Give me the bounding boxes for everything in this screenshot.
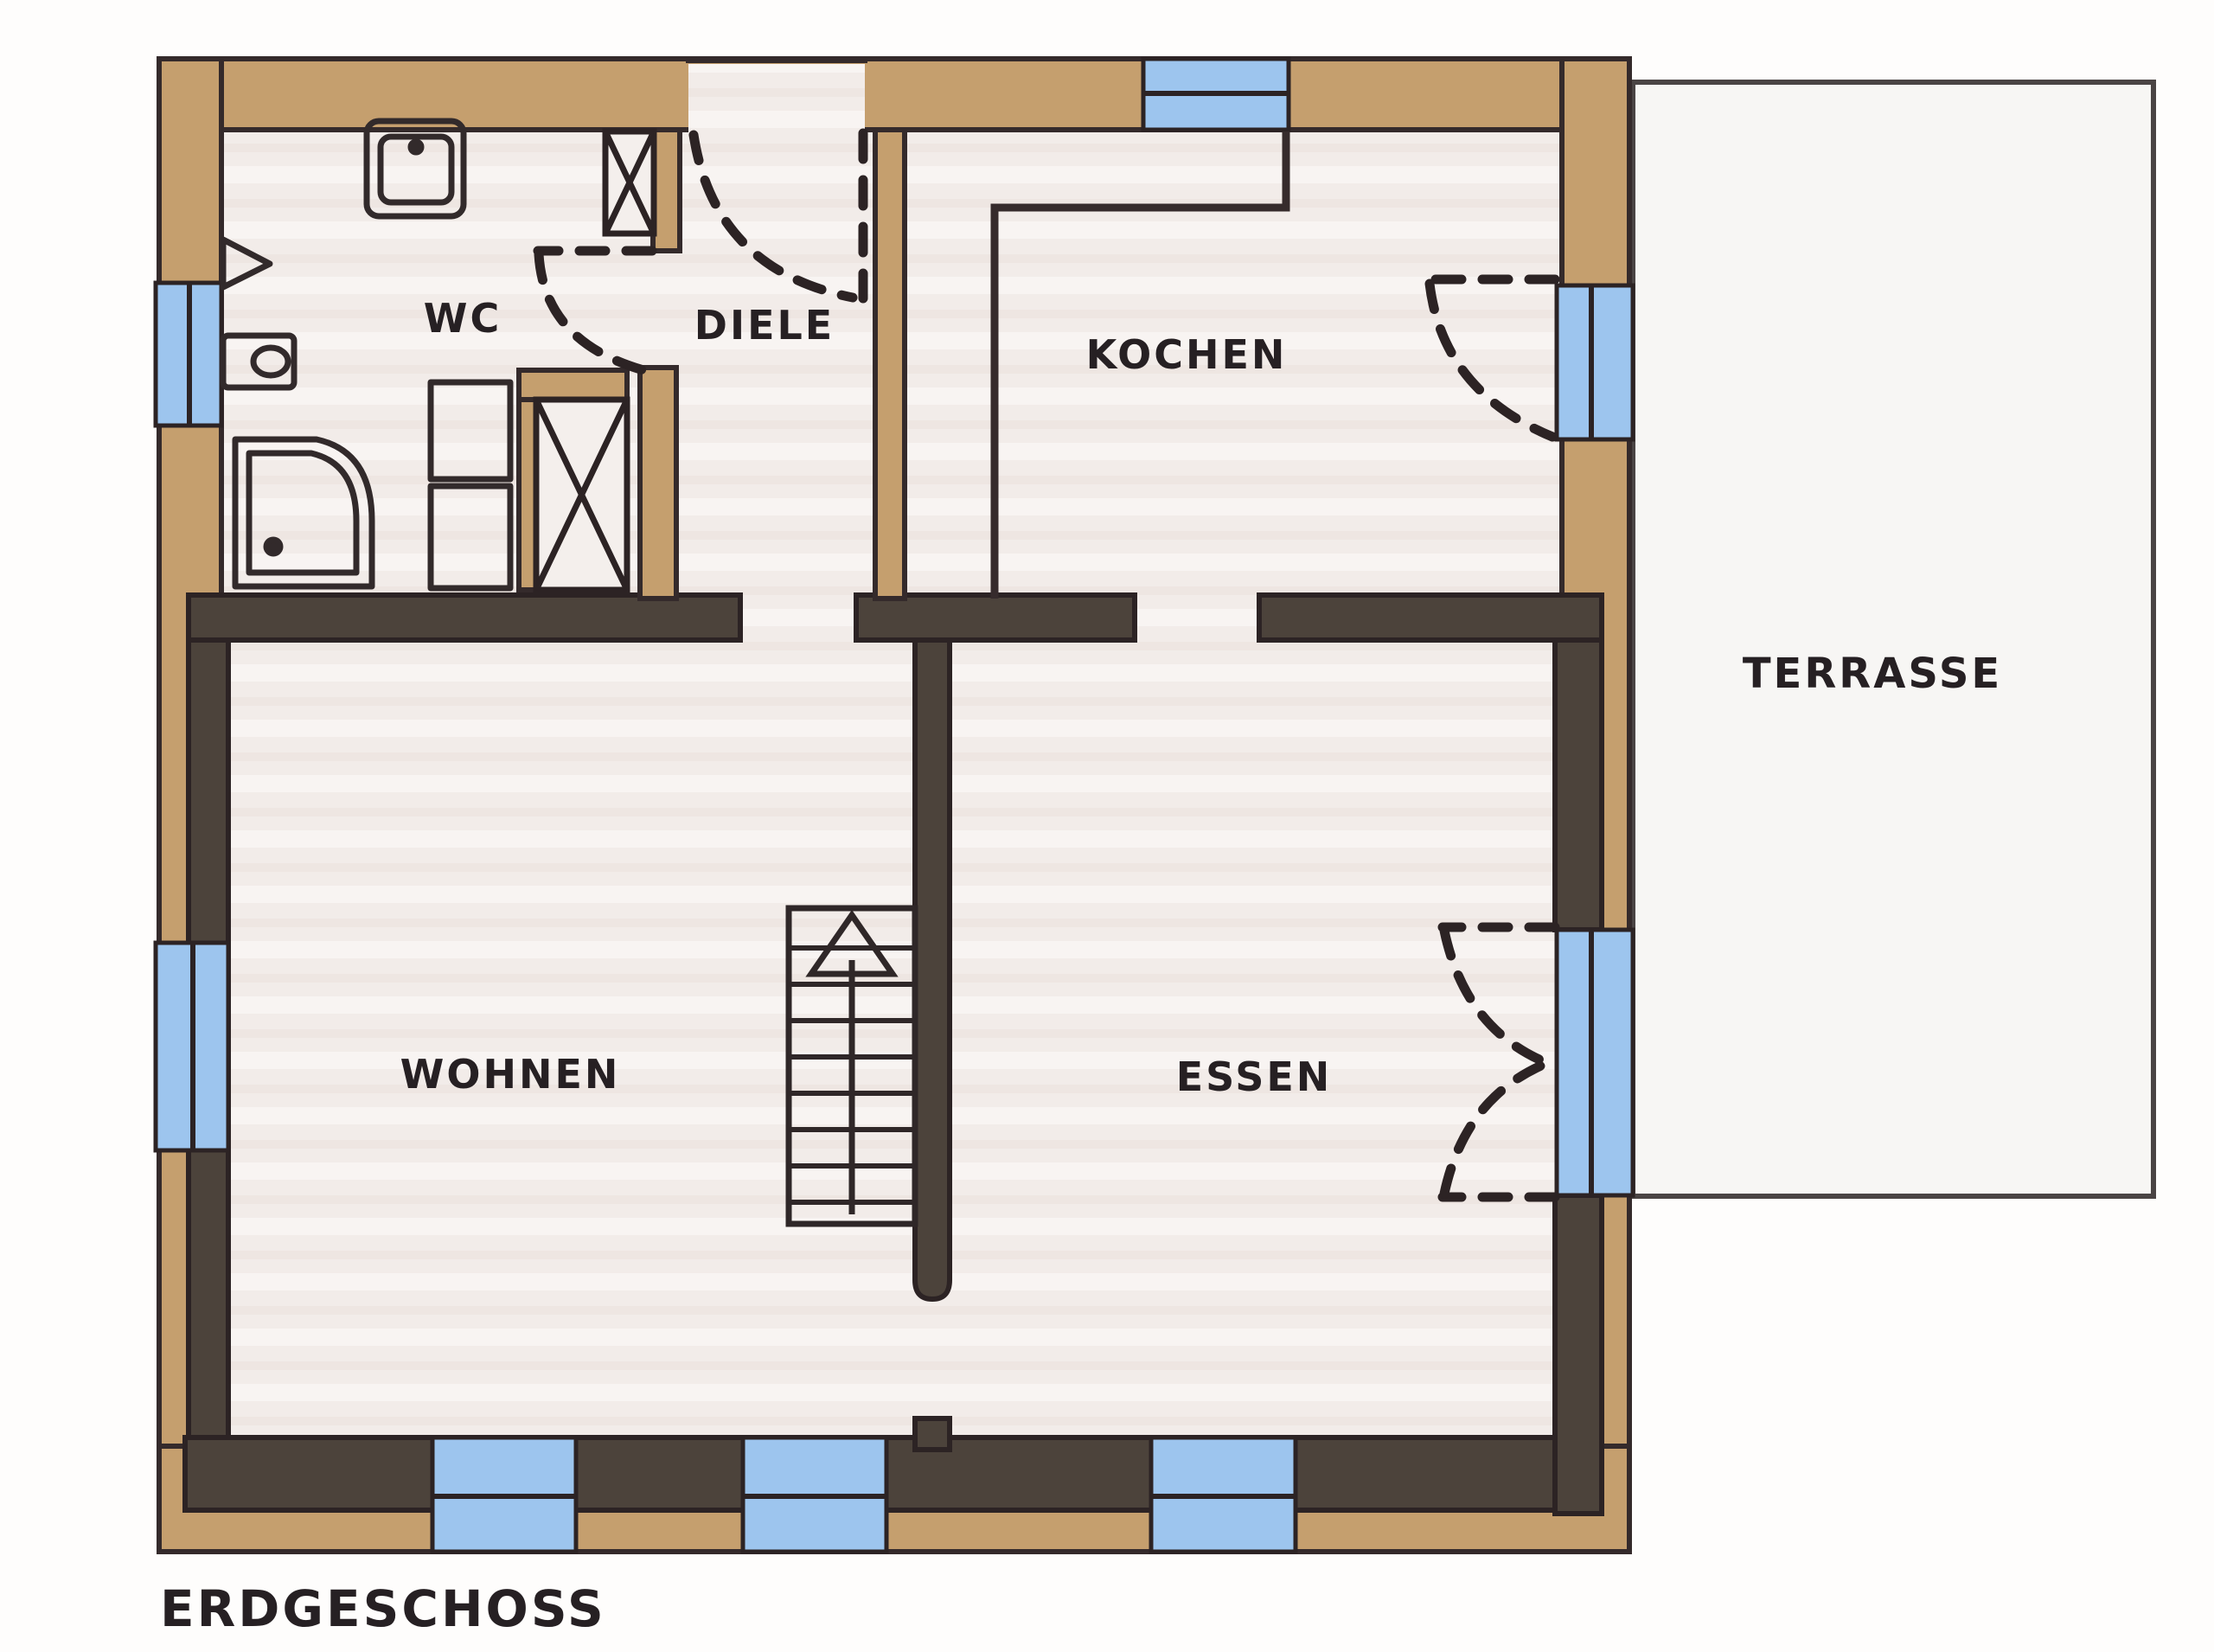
terrace [1633, 82, 2153, 1196]
partition-diele-kochen [875, 130, 905, 599]
partition-wc-diele-top [653, 130, 680, 251]
wall-right-band-upper [1555, 595, 1602, 930]
label-essen: ESSEN [1176, 1053, 1333, 1100]
shaft-wrap-top [519, 370, 627, 400]
terrace-door-essen [1557, 930, 1633, 1195]
label-kochen: KOCHEN [1086, 331, 1288, 378]
entrance-opening [688, 64, 865, 133]
interior-wall-stub-bottom [915, 1418, 950, 1450]
interior-wall-diele-essen [856, 595, 1135, 640]
wall-right-band-lower [1555, 1195, 1602, 1514]
shaft-x-icon [536, 400, 627, 590]
floor-plan: WC DIELE KOCHEN WOHNEN ESSEN TERRASSE ER… [0, 0, 2214, 1652]
terrace-door-kochen [1557, 285, 1633, 439]
wall-bottom-inner-band [185, 1437, 1600, 1510]
terrace-area [1633, 82, 2153, 1196]
label-wohnen: WOHNEN [400, 1051, 621, 1098]
interior-wall-kochen-essen [1259, 595, 1602, 640]
interior-wall-wohnen-essen [915, 640, 950, 1299]
label-diele: DIELE [694, 302, 835, 349]
shaft-x-icon [605, 131, 654, 234]
interior-wall-wc-wohnen [189, 595, 740, 640]
page-title: ERDGESCHOSS [160, 1579, 606, 1638]
partition-wc-diele-stub [640, 368, 676, 599]
label-wc: WC [424, 295, 502, 342]
label-terrasse: TERRASSE [1743, 650, 2002, 698]
